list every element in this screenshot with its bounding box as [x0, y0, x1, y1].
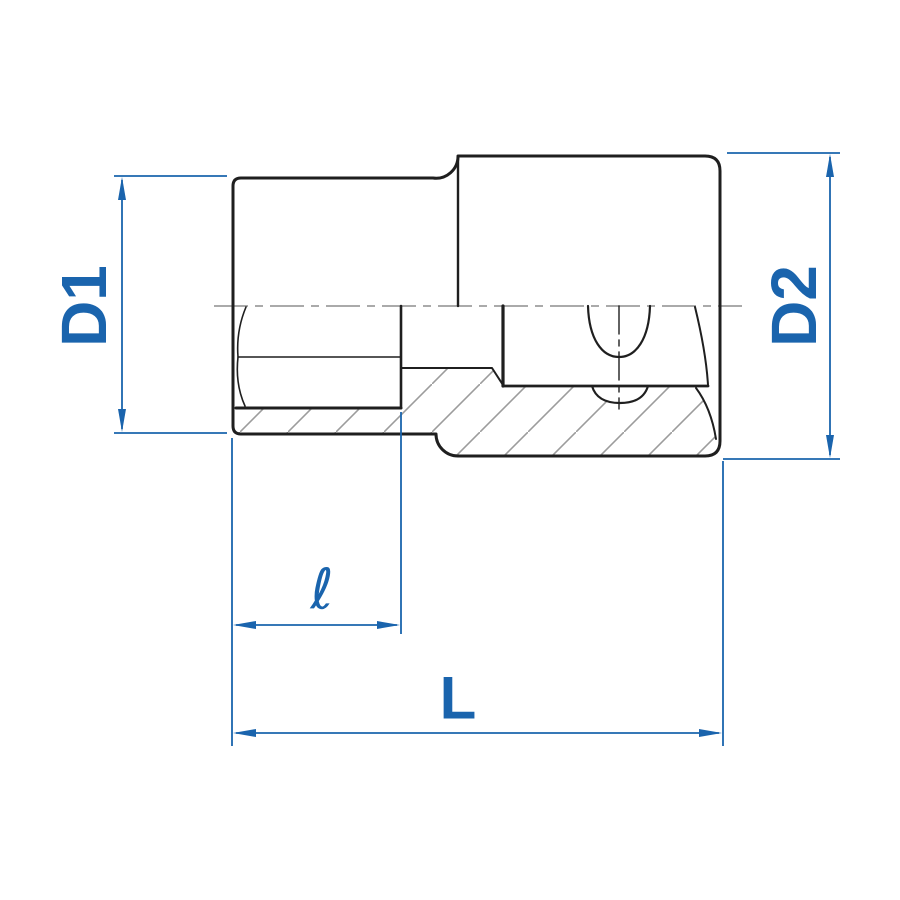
- length-arrow-left: [233, 729, 256, 737]
- hexdepth-arrow-right: [377, 621, 400, 629]
- d1-arrow-down: [118, 409, 126, 432]
- label-d2: D2: [758, 265, 830, 347]
- length-arrow-right: [699, 729, 722, 737]
- d2-arrow-down: [826, 435, 834, 458]
- label-d1: D1: [48, 265, 120, 347]
- label-total-length: L: [440, 665, 477, 732]
- d2-arrow-up: [826, 154, 834, 177]
- socket-technical-drawing: D1 D2 ℓ L: [0, 0, 900, 900]
- d1-arrow-up: [118, 177, 126, 200]
- label-hex-depth: ℓ: [309, 558, 333, 623]
- drive-entry-chamfer-curve: [695, 307, 708, 385]
- dimension-labels: D1 D2 ℓ L: [48, 265, 830, 731]
- hexdepth-arrow-left: [233, 621, 256, 629]
- drawing-canvas: D1 D2 ℓ L: [0, 0, 900, 900]
- section-hatch-area: [233, 368, 717, 456]
